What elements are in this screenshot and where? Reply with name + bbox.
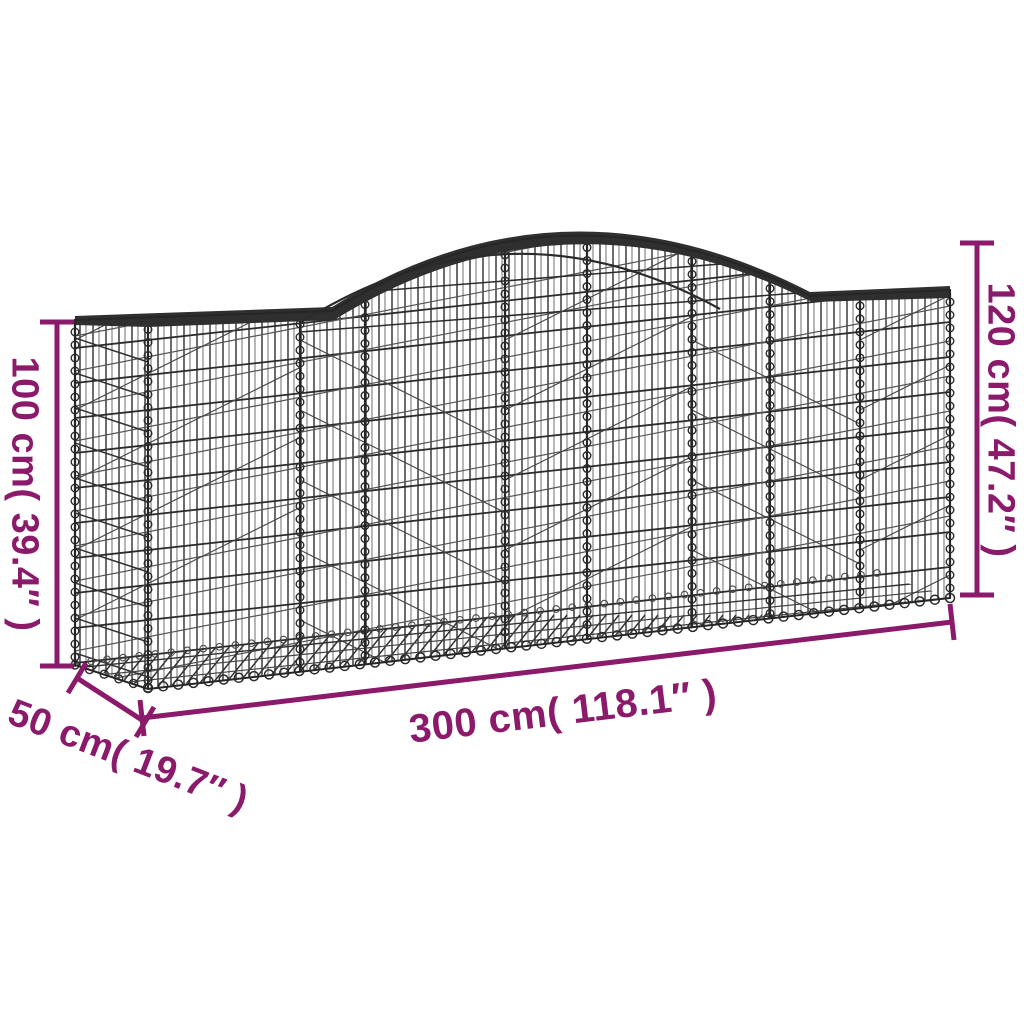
dimension-diagram: 100 cm( 39.4″ ) 120 cm( 47.2″ ) 300 cm( … [0, 0, 1024, 1024]
height-left-label: 100 cm( 39.4″ ) [3, 357, 46, 632]
top-rim-band [75, 232, 950, 327]
height-right-label: 120 cm( 47.2″ ) [979, 283, 1022, 558]
gabion-basket-illustration [0, 0, 1024, 1024]
basket-outline [75, 236, 950, 689]
